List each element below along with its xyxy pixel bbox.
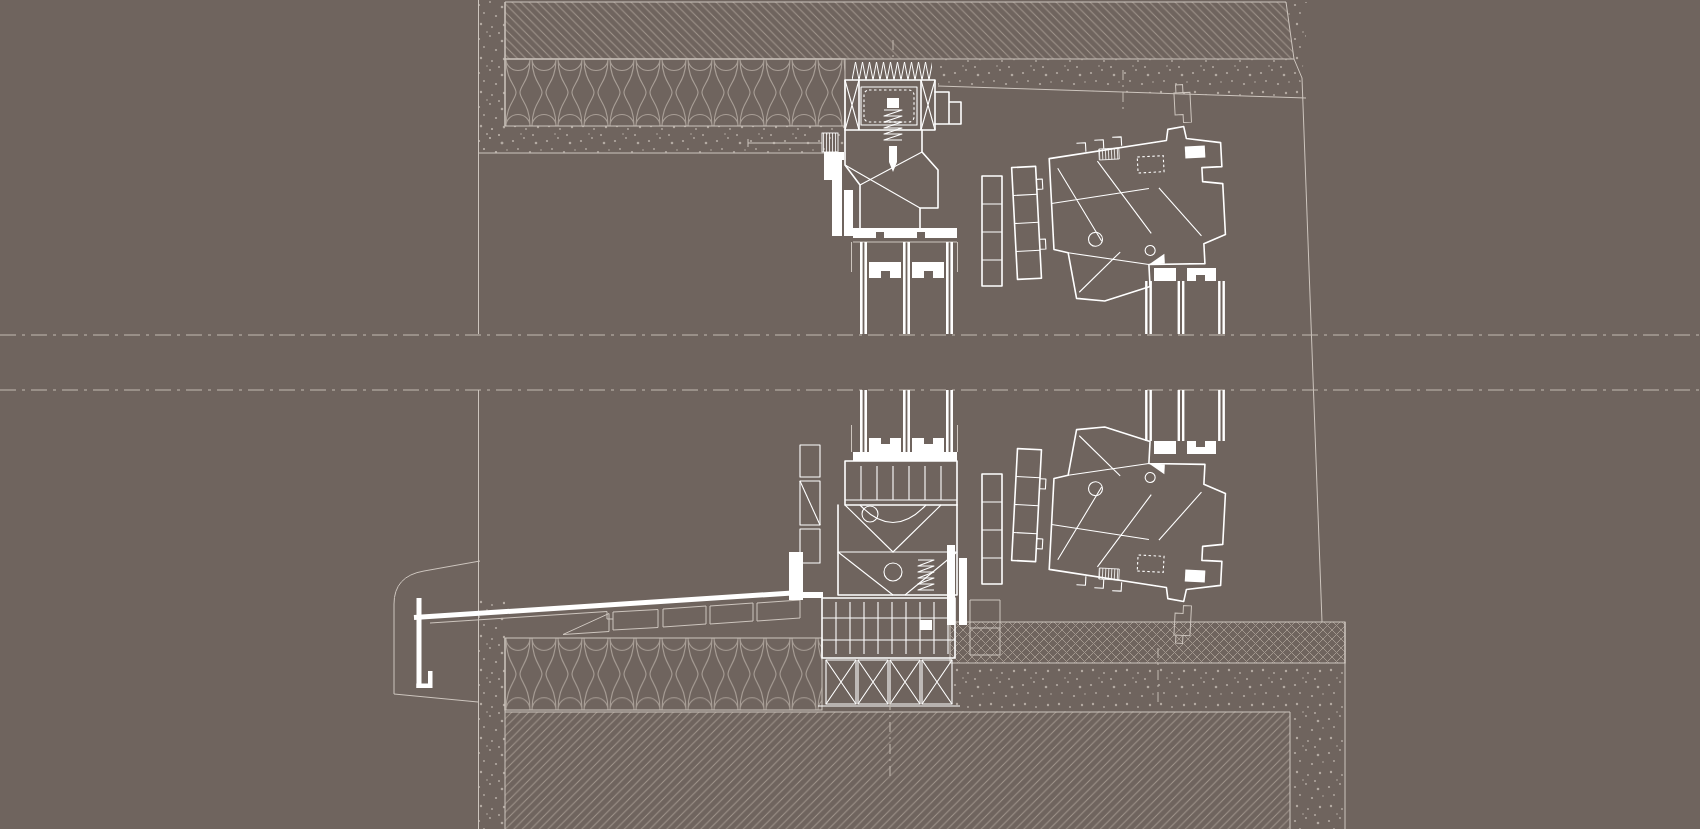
sill-sash-chambers	[845, 466, 957, 500]
lintel-speckle-under-insulation	[479, 126, 845, 153]
glass-panes-upper	[861, 242, 951, 334]
drip-edge	[417, 598, 433, 688]
main-glazing-upper	[852, 242, 958, 334]
right-glass-panes-upper	[1146, 281, 1223, 334]
main-window-head	[824, 62, 961, 242]
right-glazing-lower	[1146, 390, 1223, 454]
coupling-profile-head	[982, 176, 1002, 286]
sill-drain-arcs	[845, 505, 941, 552]
sill-bracket-foot	[803, 592, 823, 598]
sill-frame-webs	[838, 552, 957, 595]
coupling-profile-sill	[982, 474, 1002, 584]
head-anchor-screw	[884, 98, 902, 172]
subsill-insulation-blocks	[826, 660, 952, 704]
glass-spacers-lower	[869, 438, 944, 452]
section-break	[0, 335, 1700, 390]
glass-spacers-upper	[869, 262, 944, 278]
sill-frame-roller	[884, 563, 902, 581]
wall-speckle-strip-bottom	[479, 600, 506, 829]
head-right-extension	[935, 92, 961, 124]
lintel-insulation-band	[505, 59, 845, 126]
sill-left-chambers	[800, 445, 820, 563]
screed-crosshatch-band	[950, 622, 1345, 663]
main-glazing-lower	[852, 390, 958, 452]
right-glazing-upper	[1146, 268, 1223, 334]
drawing-sheet	[0, 0, 1700, 829]
right-window-sill	[1008, 423, 1229, 646]
subsill-frame	[818, 598, 960, 706]
head-sash-outline	[845, 130, 938, 230]
sill-end-cap	[394, 561, 480, 702]
right-glass-spacers-lower	[1154, 441, 1216, 454]
masonry-hatch	[505, 712, 1290, 829]
head-compriband-zigzag	[852, 62, 932, 80]
right-wall-face-line	[1302, 78, 1322, 622]
joint-seal-tape	[822, 133, 838, 152]
sill-glass-seat	[853, 452, 957, 461]
head-glazing-bead	[853, 228, 957, 242]
sill-bracket-white	[789, 552, 803, 600]
lintel-assembly	[479, 0, 1323, 622]
sill-frame-outline	[838, 505, 957, 595]
detail-drawing-canvas	[0, 0, 1700, 829]
bottom-insulation-band	[505, 638, 822, 710]
sill-sash-outline	[845, 461, 957, 505]
right-glass-spacers-upper	[1154, 268, 1216, 281]
lintel-slab-hatch	[505, 2, 1294, 59]
right-glass-panes-lower	[1146, 390, 1223, 441]
